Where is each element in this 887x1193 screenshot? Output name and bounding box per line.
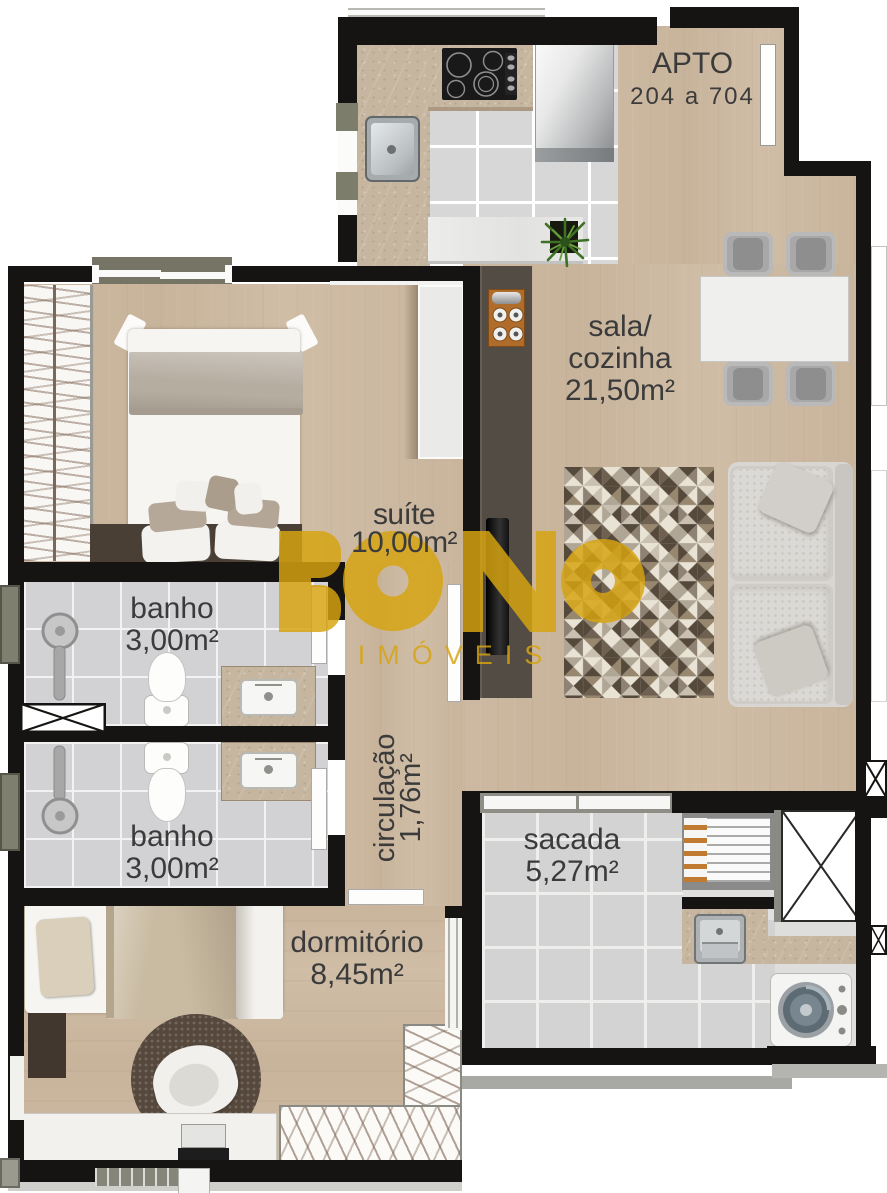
svg-text:IMÓVEIS: IMÓVEIS [358, 639, 555, 670]
